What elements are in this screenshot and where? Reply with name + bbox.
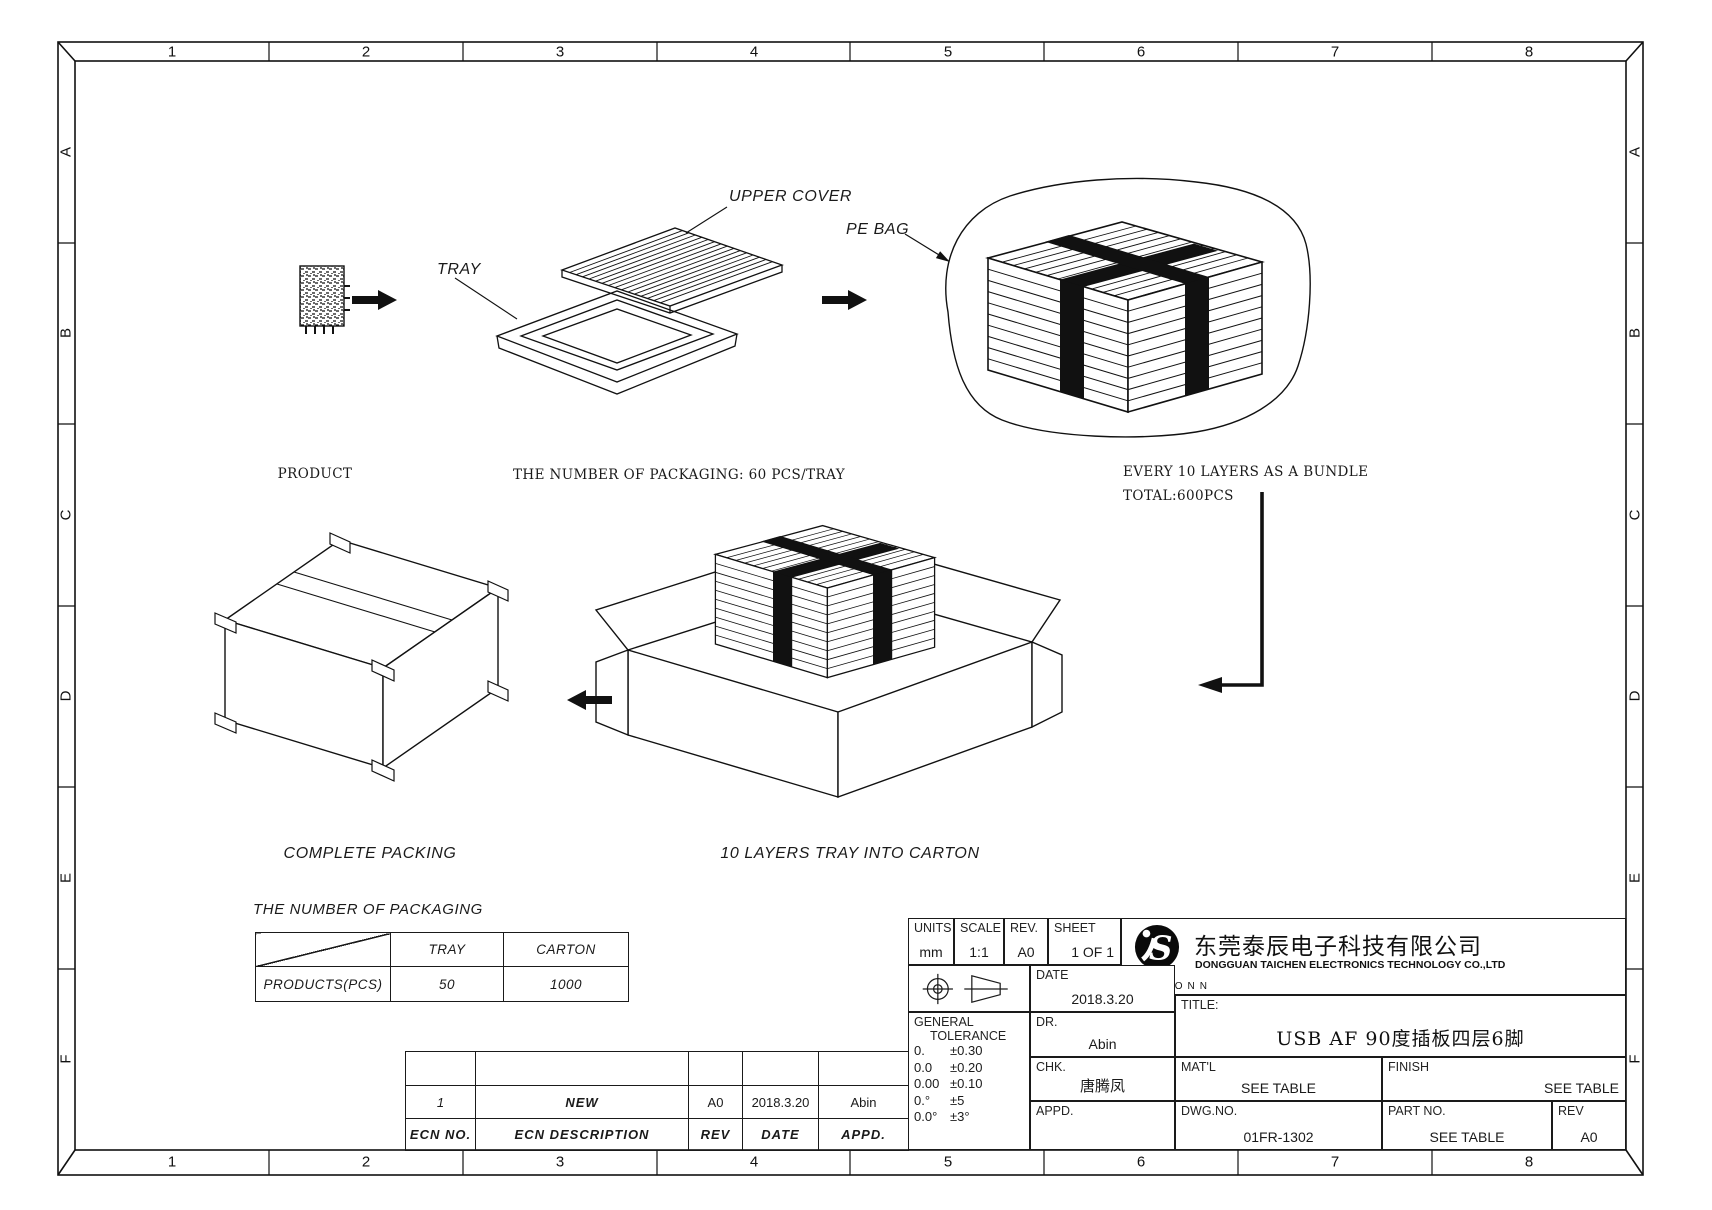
ecn-cell	[819, 1052, 909, 1086]
rev-cell: REV. A0	[1004, 918, 1048, 965]
ecn-header-appd: APPD.	[819, 1119, 909, 1151]
zone-col-bot-6: 6	[1137, 1154, 1145, 1171]
tolerance-row: 0.0 ±0.20	[914, 1060, 1029, 1077]
rev-value: A0	[1005, 944, 1047, 960]
third-angle-projection-icon	[915, 972, 1023, 1006]
zone-row-left-f: F	[58, 1054, 75, 1063]
zone-col-bot-5: 5	[944, 1154, 952, 1171]
appd-label: APPD.	[1036, 1104, 1074, 1118]
zone-col-top-7: 7	[1331, 44, 1339, 61]
ecn-header-description: ECN DESCRIPTION	[476, 1119, 689, 1151]
date-cell: DATE 2018.3.20	[1030, 965, 1175, 1012]
tolerance-value: ±0.10	[950, 1076, 982, 1093]
dr-value: Abin	[1031, 1036, 1174, 1052]
zone-col-bot-2: 2	[362, 1154, 370, 1171]
tolerance-basis: 0.0	[914, 1060, 950, 1077]
zone-col-top-1: 1	[168, 44, 176, 61]
tolerance-cell: GENERAL TOLERANCE 0. ±0.30 0.0 ±0.20 0.0…	[908, 1012, 1030, 1150]
company-name-en: DONGGUAN TAICHEN ELECTRONICS TECHNOLOGY …	[1195, 959, 1505, 971]
zone-row-left-b: B	[58, 328, 75, 338]
packaging-row-label: PRODUCTS(PCS)	[256, 967, 391, 1002]
company-cell: S TISCONN 东莞泰辰电子科技有限公司 DONGGUAN TAICHEN …	[1121, 918, 1626, 995]
finish-value: SEE TABLE	[1383, 1080, 1625, 1096]
zone-col-top-5: 5	[944, 44, 952, 61]
chk-value: 唐腾凤	[1031, 1075, 1174, 1096]
pe-bag-leader	[905, 234, 950, 262]
date-value: 2018.3.20	[1031, 991, 1174, 1007]
zone-row-right-a: A	[1627, 147, 1644, 157]
tolerance-value: ±5	[950, 1093, 964, 1110]
matl-value: SEE TABLE	[1176, 1080, 1381, 1096]
company-name-cn: 东莞泰辰电子科技有限公司	[1194, 927, 1482, 961]
sheet-cell: SHEET 1 OF 1	[1048, 918, 1121, 965]
packaging-drawing-sheet: 1 2 3 4 5 6 7 8 1 2 3 4 5 6 7 8 A B C D …	[0, 0, 1712, 1210]
title-label: TITLE:	[1181, 998, 1219, 1012]
part-no-value: SEE TABLE	[1383, 1129, 1551, 1145]
tolerance-value: ±0.30	[950, 1043, 982, 1060]
zone-row-right-c: C	[1627, 510, 1644, 521]
dwg-no-value: 01FR-1302	[1176, 1129, 1381, 1145]
tolerance-label-line1: GENERAL	[914, 1015, 1029, 1029]
packaging-table-diagonal-cell	[256, 933, 391, 967]
dr-cell: DR. Abin	[1030, 1012, 1175, 1057]
tolerance-row: 0.0° ±3°	[914, 1109, 1029, 1126]
finish-label: FINISH	[1388, 1060, 1429, 1074]
ecn-description-value: NEW	[476, 1086, 689, 1119]
zone-row-left-c: C	[58, 510, 75, 521]
zone-col-bot-4: 4	[750, 1154, 758, 1171]
tolerance-basis: 0.0°	[914, 1109, 950, 1126]
zone-row-right-d: D	[1627, 691, 1644, 702]
zone-col-bot-1: 1	[168, 1154, 176, 1171]
zone-row-left-d: D	[58, 691, 75, 702]
ecn-cell	[406, 1052, 476, 1086]
rev-label: REV.	[1010, 921, 1038, 935]
tolerance-basis: 0.00	[914, 1076, 950, 1093]
bundle-total-caption: TOTAL:600PCS	[1123, 488, 1234, 504]
units-cell: UNITS mm	[908, 918, 954, 965]
units-value: mm	[909, 944, 953, 960]
carton-open-drawing	[596, 526, 1062, 797]
zone-col-bot-8: 8	[1525, 1154, 1533, 1171]
ecn-header-no: ECN NO.	[406, 1119, 476, 1151]
packaging-col-tray: TRAY	[391, 933, 504, 967]
tray-label: TRAY	[437, 261, 481, 279]
tolerance-value: ±3°	[950, 1109, 970, 1126]
tolerance-label-line2: TOLERANCE	[914, 1029, 1029, 1043]
rev2-value: A0	[1553, 1129, 1625, 1145]
zone-col-top-3: 3	[556, 44, 564, 61]
packaging-col-carton: CARTON	[504, 933, 629, 967]
product-drawing	[300, 266, 350, 334]
bundle-caption: EVERY 10 LAYERS AS A BUNDLE	[1123, 464, 1368, 480]
tisconn-logo-icon: S	[1134, 924, 1180, 970]
tolerance-basis: 0.°	[914, 1093, 950, 1110]
zone-row-right-b: B	[1627, 328, 1644, 338]
matl-label: MAT'L	[1181, 1060, 1216, 1074]
finish-cell: FINISH SEE TABLE	[1382, 1057, 1626, 1101]
zone-col-top-8: 8	[1525, 44, 1533, 61]
ecn-header-rev: REV	[689, 1119, 743, 1151]
zone-row-right-e: E	[1627, 873, 1644, 883]
dwg-no-label: DWG.NO.	[1181, 1104, 1237, 1118]
flow-arrow-2	[822, 290, 867, 310]
pe-bag-label: PE BAG	[846, 221, 909, 239]
ecn-appd-value: Abin	[819, 1086, 909, 1119]
drawing-title: USB AF 90度插板四层6脚	[1176, 1024, 1625, 1051]
dr-label: DR.	[1036, 1015, 1058, 1029]
tolerance-row: 0.° ±5	[914, 1093, 1029, 1110]
packaging-tray-value: 50	[391, 967, 504, 1002]
projection-cell	[908, 965, 1030, 1012]
tolerance-row: 0. ±0.30	[914, 1043, 1029, 1060]
upper-cover-drawing	[562, 207, 782, 313]
tolerance-value: ±0.20	[950, 1060, 982, 1077]
flow-arrow-elbow	[1198, 492, 1262, 693]
units-label: UNITS	[914, 921, 952, 935]
zone-col-top-6: 6	[1137, 44, 1145, 61]
carton-closed-drawing	[215, 533, 508, 781]
tolerance-row: 0.00 ±0.10	[914, 1076, 1029, 1093]
packaging-table-title: THE NUMBER OF PACKAGING	[253, 901, 483, 918]
part-no-cell: PART NO. SEE TABLE	[1382, 1101, 1552, 1150]
ecn-rev-value: A0	[689, 1086, 743, 1119]
ecn-table: 1 NEW A0 2018.3.20 Abin ECN NO. ECN DESC…	[405, 1051, 909, 1151]
upper-cover-label: UPPER COVER	[729, 188, 852, 206]
sheet-value: 1 OF 1	[1049, 944, 1120, 960]
dwg-no-cell: DWG.NO. 01FR-1302	[1175, 1101, 1382, 1150]
pe-bag-bundle-drawing	[946, 178, 1310, 436]
title-cell: TITLE: USB AF 90度插板四层6脚	[1175, 995, 1626, 1057]
zone-row-left-e: E	[58, 873, 75, 883]
ecn-cell	[743, 1052, 819, 1086]
packaging-table: TRAY CARTON PRODUCTS(PCS) 50 1000	[255, 932, 629, 1002]
ecn-cell	[689, 1052, 743, 1086]
packaging-carton-value: 1000	[504, 967, 629, 1002]
scale-label: SCALE	[960, 921, 1001, 935]
zone-row-left-a: A	[58, 147, 75, 157]
sheet-label: SHEET	[1054, 921, 1096, 935]
scale-value: 1:1	[955, 944, 1003, 960]
matl-cell: MAT'L SEE TABLE	[1175, 1057, 1382, 1101]
zone-col-top-2: 2	[362, 44, 370, 61]
date-label: DATE	[1036, 968, 1068, 982]
chk-label: CHK.	[1036, 1060, 1066, 1074]
tray-caption: THE NUMBER OF PACKAGING: 60 PCS/TRAY	[513, 467, 813, 483]
complete-packing-caption: COMPLETE PACKING	[240, 845, 500, 863]
zone-col-bot-3: 3	[556, 1154, 564, 1171]
chk-cell: CHK. 唐腾凤	[1030, 1057, 1175, 1101]
product-caption: PRODUCT	[270, 466, 360, 482]
flow-arrow-1	[352, 290, 397, 310]
ecn-date-value: 2018.3.20	[743, 1086, 819, 1119]
tolerance-basis: 0.	[914, 1043, 950, 1060]
scale-cell: SCALE 1:1	[954, 918, 1004, 965]
part-no-label: PART NO.	[1388, 1104, 1446, 1118]
rev2-cell: REV A0	[1552, 1101, 1626, 1150]
carton-caption: 10 LAYERS TRAY INTO CARTON	[695, 845, 1005, 863]
appd-cell: APPD.	[1030, 1101, 1175, 1150]
ecn-no-value: 1	[406, 1086, 476, 1119]
ecn-header-date: DATE	[743, 1119, 819, 1151]
zone-row-right-f: F	[1627, 1054, 1644, 1063]
zone-col-bot-7: 7	[1331, 1154, 1339, 1171]
ecn-cell	[476, 1052, 689, 1086]
rev2-label: REV	[1558, 1104, 1584, 1118]
zone-col-top-4: 4	[750, 44, 758, 61]
